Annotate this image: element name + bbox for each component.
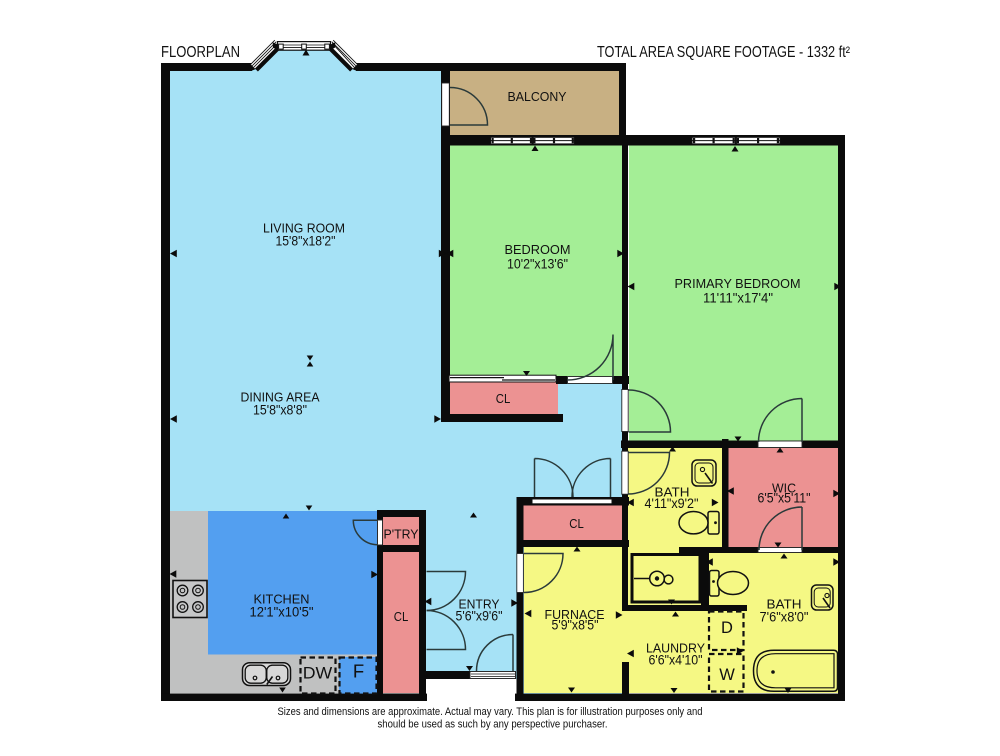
svg-text:CL: CL bbox=[496, 391, 511, 406]
svg-text:BALCONY: BALCONY bbox=[508, 89, 567, 104]
svg-text:Sizes and dimensions are appro: Sizes and dimensions are approximate. Ac… bbox=[278, 706, 703, 718]
svg-text:10'2"x13'6": 10'2"x13'6" bbox=[507, 257, 568, 272]
svg-text:5'9"x8'5": 5'9"x8'5" bbox=[552, 618, 599, 633]
svg-text:4'11"x9'2": 4'11"x9'2" bbox=[645, 496, 699, 511]
svg-text:CL: CL bbox=[569, 516, 584, 531]
svg-text:W: W bbox=[719, 666, 735, 684]
svg-text:7'6"x8'0": 7'6"x8'0" bbox=[760, 610, 809, 625]
svg-text:11'11"x17'4": 11'11"x17'4" bbox=[703, 291, 773, 306]
svg-text:P'TRY: P'TRY bbox=[384, 527, 419, 542]
svg-text:6'5"x5'11": 6'5"x5'11" bbox=[758, 491, 811, 506]
svg-text:15'8"x18'2": 15'8"x18'2" bbox=[276, 234, 336, 249]
svg-text:TOTAL AREA SQUARE FOOTAGE - 13: TOTAL AREA SQUARE FOOTAGE - 1332 ft² bbox=[597, 44, 850, 61]
svg-text:6'6"x4'10": 6'6"x4'10" bbox=[649, 653, 703, 668]
svg-text:FLOORPLAN: FLOORPLAN bbox=[161, 44, 240, 61]
svg-text:D: D bbox=[721, 619, 733, 637]
svg-text:PRIMARY BEDROOM: PRIMARY BEDROOM bbox=[675, 276, 801, 291]
svg-text:15'8"x8'8": 15'8"x8'8" bbox=[253, 403, 307, 418]
svg-text:F: F bbox=[353, 661, 364, 682]
svg-text:BEDROOM: BEDROOM bbox=[505, 242, 571, 257]
svg-text:should be used as such by any: should be used as such by any perspectiv… bbox=[378, 719, 608, 731]
svg-text:5'6"x9'6": 5'6"x9'6" bbox=[456, 609, 503, 624]
svg-text:12'1"x10'5": 12'1"x10'5" bbox=[250, 605, 314, 620]
svg-text:DW: DW bbox=[303, 664, 333, 683]
svg-text:CL: CL bbox=[394, 609, 409, 624]
